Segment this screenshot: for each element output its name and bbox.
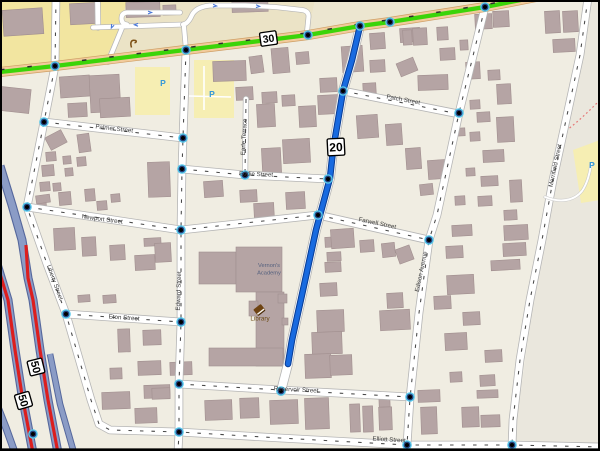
svg-text:30: 30 <box>262 32 275 46</box>
svg-text:Eddie Street: Eddie Street <box>239 170 274 178</box>
svg-text:20: 20 <box>329 140 343 155</box>
svg-text:Academy: Academy <box>257 271 281 277</box>
svg-text:Library: Library <box>250 316 270 323</box>
svg-text:Vernon's: Vernon's <box>258 263 280 269</box>
svg-text:Edward Street: Edward Street <box>175 271 183 311</box>
svg-text:P: P <box>160 78 166 88</box>
svg-text:P: P <box>209 89 215 99</box>
svg-text:P: P <box>589 160 595 170</box>
